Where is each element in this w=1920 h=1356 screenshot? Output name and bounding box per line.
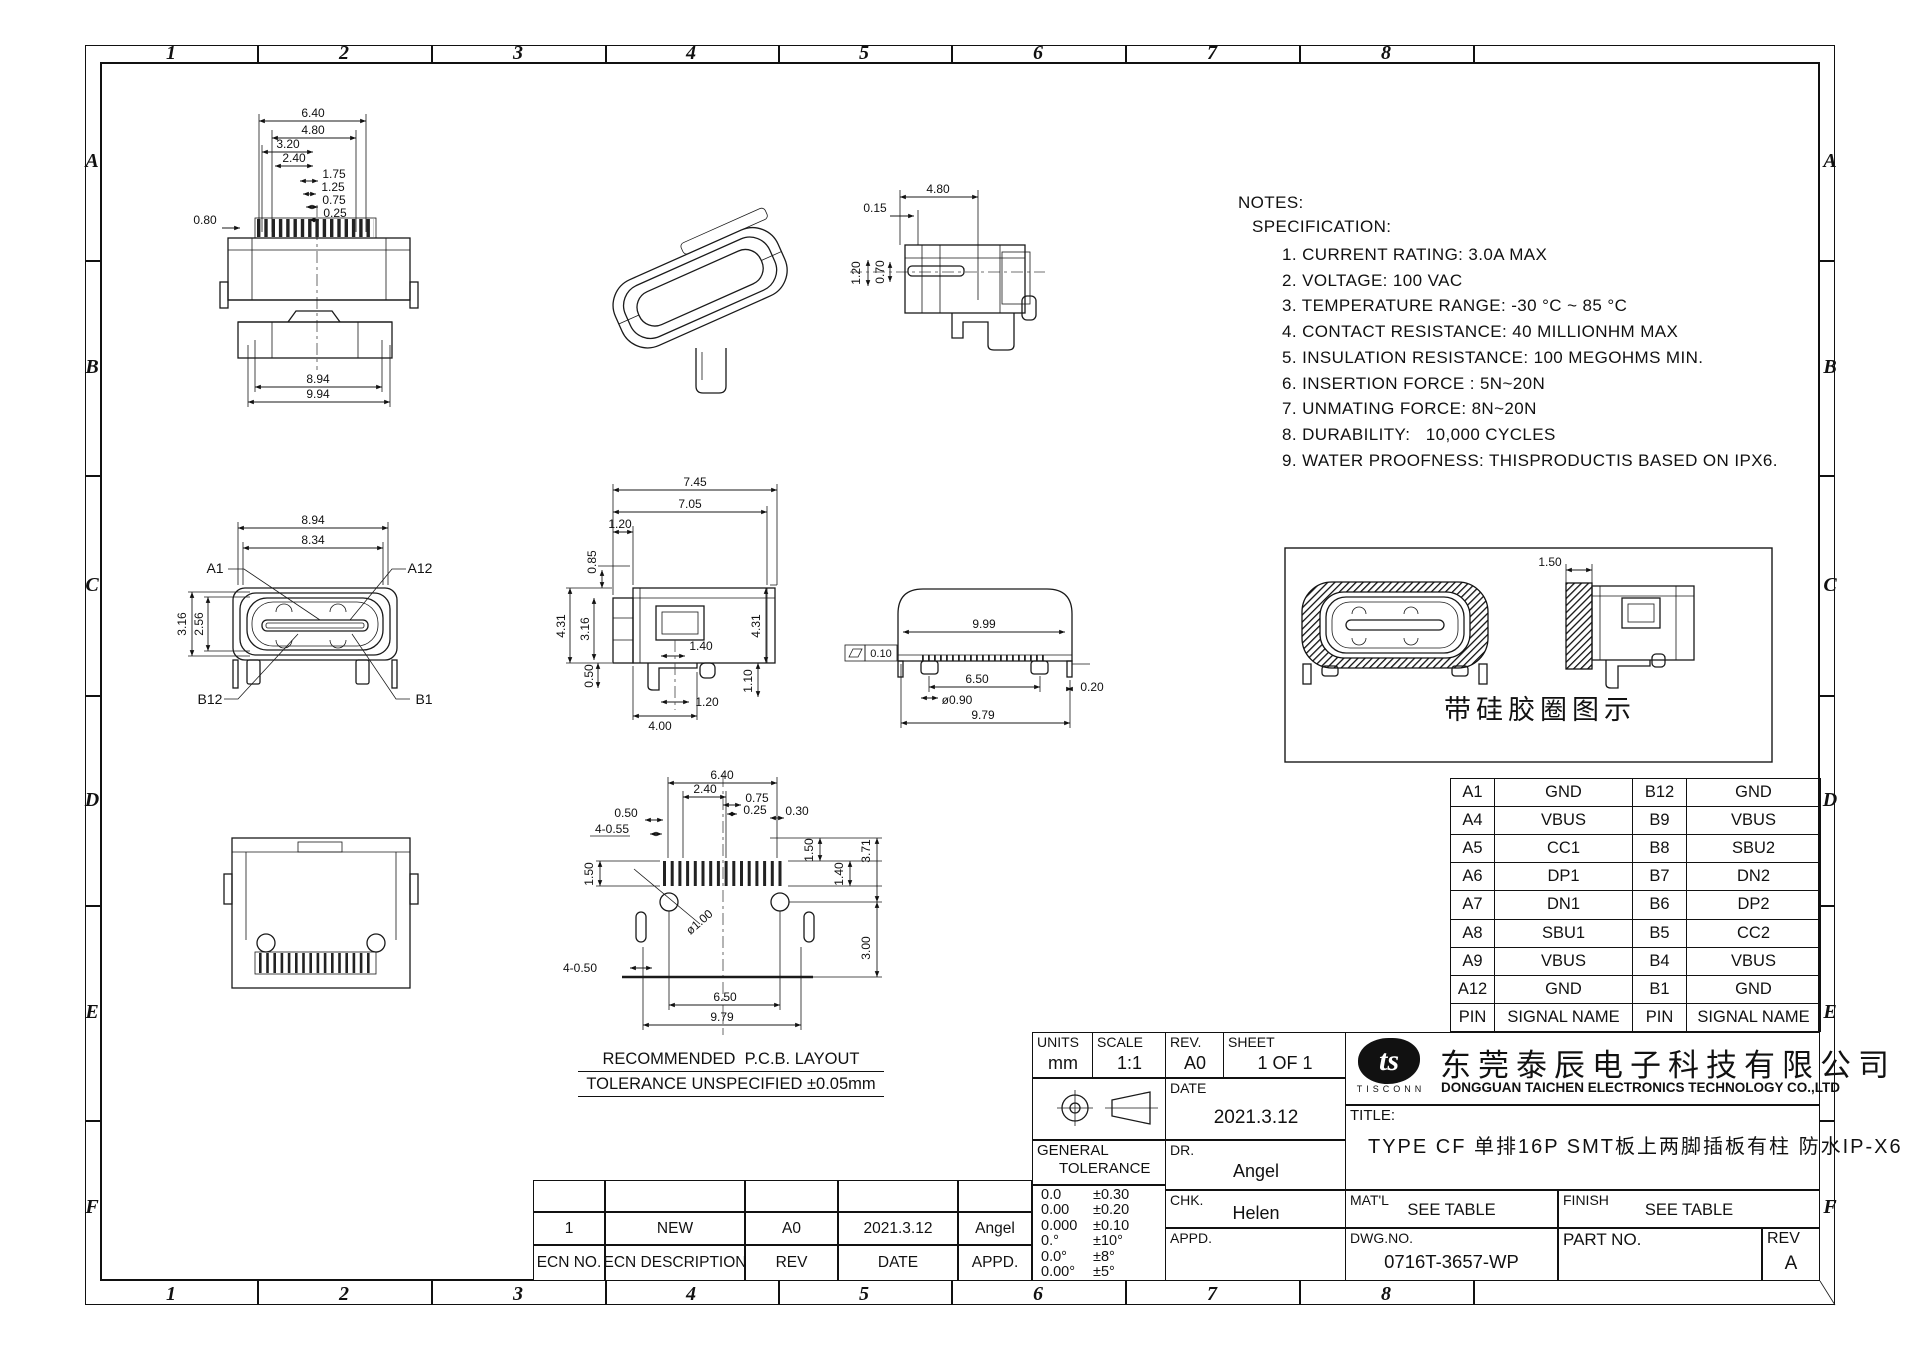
ecn-empty-cell <box>605 1180 745 1212</box>
note-item: 5. INSULATION RESISTANCE: 100 MEGOHMS MI… <box>1282 345 1708 371</box>
scale-cell: SCALE 1:1 <box>1092 1032 1167 1078</box>
grid-col-bottom: 4 <box>676 1284 706 1304</box>
pin-header-cell: PIN <box>1633 1003 1687 1031</box>
pin-cell: A5 <box>1451 835 1495 863</box>
checked-by-cell: CHK. Helen <box>1165 1190 1347 1228</box>
general-tolerance-line1: GENERAL <box>1037 1142 1109 1159</box>
sheet-label: SHEET <box>1228 1034 1275 1050</box>
tolerance-row: 0.00±0.20 <box>1041 1203 1166 1218</box>
date-label: DATE <box>1170 1080 1206 1096</box>
appd-label: APPD. <box>1170 1230 1212 1246</box>
rev-label: REV. <box>1170 1034 1201 1050</box>
rev-value: A0 <box>1166 1053 1224 1074</box>
grid-col-bottom: 8 <box>1371 1284 1401 1304</box>
grid-row-left: B <box>80 357 104 377</box>
grid-col-top: 5 <box>849 43 879 63</box>
rev2-value: A <box>1763 1253 1819 1275</box>
finish-cell: FINISH SEE TABLE <box>1558 1190 1820 1228</box>
grid-row-left: A <box>80 151 104 171</box>
dwg-no-cell: DWG.NO. 0716T-3657-WP <box>1345 1228 1558 1281</box>
signal-cell: GND <box>1495 975 1633 1003</box>
units-value: mm <box>1033 1053 1093 1074</box>
silicone-caption: 带硅胶圈图示 <box>1390 688 1690 727</box>
units-cell: UNITS mm <box>1032 1032 1094 1078</box>
grid-col-bottom: 6 <box>1023 1284 1053 1304</box>
ecn-empty-cell <box>958 1180 1032 1212</box>
grid-row-right: E <box>1818 1002 1842 1022</box>
notes-block: NOTES: SPECIFICATION: 1. CURRENT RATING:… <box>1238 193 1708 473</box>
signal-cell: DP2 <box>1687 891 1821 919</box>
ecn-appd-value: Angel <box>958 1212 1032 1245</box>
drawing-sheet: 1 2 3 4 5 6 7 8 1 2 3 4 5 6 7 8 A B C D … <box>0 0 1920 1356</box>
grid-row-right: D <box>1818 790 1842 810</box>
finish-value: SEE TABLE <box>1559 1201 1819 1220</box>
signal-cell: GND <box>1687 779 1821 807</box>
grid-row-right: A <box>1818 151 1842 171</box>
grid-col-top: 2 <box>329 43 359 63</box>
company-name-cn: 东莞泰辰电子科技有限公司 <box>1440 1040 1812 1085</box>
material-cell: MAT'L SEE TABLE <box>1345 1190 1558 1228</box>
table-row: A6 DP1 B7 DN2 <box>1451 863 1821 891</box>
note-item: 2. VOLTAGE: 100 VAC <box>1282 268 1708 294</box>
ecn-empty-cell <box>745 1180 838 1212</box>
table-row: A5 CC1 B8 SBU2 <box>1451 835 1821 863</box>
pin-cell: A9 <box>1451 947 1495 975</box>
note-item: 1. CURRENT RATING: 3.0A MAX <box>1282 242 1708 268</box>
sheet-value: 1 OF 1 <box>1224 1053 1346 1074</box>
note-item: 8. DURABILITY: 10,000 CYCLES <box>1282 422 1708 448</box>
chk-value: Helen <box>1166 1203 1346 1224</box>
ecn-no-value: 1 <box>533 1212 605 1245</box>
note-item: 3. TEMPERATURE RANGE: -30 °C ~ 85 °C <box>1282 293 1708 319</box>
signal-cell: CC1 <box>1495 835 1633 863</box>
grid-col-bottom: 2 <box>329 1284 359 1304</box>
pin-cell: B7 <box>1633 863 1687 891</box>
part-no-cell: PART NO. <box>1558 1228 1762 1281</box>
note-item: 7. UNMATING FORCE: 8N~20N <box>1282 396 1708 422</box>
ecn-appd-header: APPD. <box>958 1245 1032 1281</box>
table-header-row: PIN SIGNAL NAME PIN SIGNAL NAME <box>1451 1003 1821 1031</box>
table-row: A8 SBU1 B5 CC2 <box>1451 919 1821 947</box>
signal-cell: SBU1 <box>1495 919 1633 947</box>
pin-cell: B4 <box>1633 947 1687 975</box>
date-cell: DATE 2021.3.12 <box>1165 1078 1347 1140</box>
signal-cell: CC2 <box>1687 919 1821 947</box>
ecn-empty-cell <box>533 1180 605 1212</box>
grid-col-top: 4 <box>676 43 706 63</box>
ecn-rev-value: A0 <box>745 1212 838 1245</box>
units-label: UNITS <box>1037 1034 1079 1050</box>
grid-col-top: 7 <box>1197 43 1227 63</box>
tolerance-values-cell: 0.0±0.30 0.00±0.20 0.000±0.10 0.°±10° 0.… <box>1032 1185 1167 1281</box>
dr-value: Angel <box>1166 1161 1346 1182</box>
dwgno-value: 0716T-3657-WP <box>1346 1251 1557 1273</box>
notes-subtitle: SPECIFICATION: <box>1252 217 1708 237</box>
signal-cell: VBUS <box>1687 947 1821 975</box>
pcb-layout-caption: RECOMMENDED P.C.B. LAYOUT TOLERANCE UNSP… <box>578 1050 884 1100</box>
pin-cell: A12 <box>1451 975 1495 1003</box>
ecn-description-header: ECN DESCRIPTION <box>605 1245 745 1281</box>
ecn-rev-header: REV <box>745 1245 838 1281</box>
pin-cell: B9 <box>1633 807 1687 835</box>
ecn-date-value: 2021.3.12 <box>838 1212 958 1245</box>
logo-mark: ts <box>1358 1038 1420 1084</box>
signal-cell: DN2 <box>1687 863 1821 891</box>
pin-cell: B12 <box>1633 779 1687 807</box>
rev2-label: REV <box>1767 1230 1800 1248</box>
pcb-caption-line2: TOLERANCE UNSPECIFIED ±0.05mm <box>578 1075 884 1097</box>
pin-cell: A7 <box>1451 891 1495 919</box>
date-value: 2021.3.12 <box>1166 1107 1346 1129</box>
note-item: 4. CONTACT RESISTANCE: 40 MILLIONHM MAX <box>1282 319 1708 345</box>
signal-cell: GND <box>1495 779 1633 807</box>
signal-header-cell: SIGNAL NAME <box>1687 1003 1821 1031</box>
company-logo: ts TISCONN <box>1352 1038 1430 1090</box>
grid-row-left: C <box>80 575 104 595</box>
approved-by-cell: APPD. <box>1165 1228 1347 1281</box>
pin-cell: A1 <box>1451 779 1495 807</box>
company-name-en: DONGGUAN TAICHEN ELECTRONICS TECHNOLOGY … <box>1441 1080 1840 1095</box>
partno-label: PART NO. <box>1563 1230 1641 1250</box>
pin-cell: A4 <box>1451 807 1495 835</box>
rev-letter-cell: REV A <box>1762 1228 1820 1281</box>
general-tolerance-line2: TOLERANCE <box>1059 1160 1150 1177</box>
ecn-empty-cell <box>838 1180 958 1212</box>
tolerance-row: 0.000±0.10 <box>1041 1219 1166 1234</box>
table-row: A1 GND B12 GND <box>1451 779 1821 807</box>
tolerance-row: 0.0°±8° <box>1041 1250 1166 1265</box>
signal-cell: SBU2 <box>1687 835 1821 863</box>
grid-row-left: F <box>80 1197 104 1217</box>
pin-cell: A6 <box>1451 863 1495 891</box>
grid-row-right: B <box>1818 357 1842 377</box>
grid-col-bottom: 1 <box>156 1284 186 1304</box>
pin-cell: A8 <box>1451 919 1495 947</box>
sheet-cell: SHEET 1 OF 1 <box>1223 1032 1347 1078</box>
drawing-title: TYPE CF 单排16P SMT板上两脚插板有柱 防水IP-X6 <box>1368 1130 1903 1159</box>
ecn-description-value: NEW <box>605 1212 745 1245</box>
pin-cell: B5 <box>1633 919 1687 947</box>
drawn-by-cell: DR. Angel <box>1165 1140 1347 1190</box>
projection-symbol-cell <box>1032 1078 1167 1140</box>
grid-col-top: 3 <box>503 43 533 63</box>
table-row: A9 VBUS B4 VBUS <box>1451 947 1821 975</box>
table-row: A12 GND B1 GND <box>1451 975 1821 1003</box>
tolerance-row: 0.°±10° <box>1041 1234 1166 1249</box>
grid-row-left: E <box>80 1002 104 1022</box>
tolerance-row: 0.0±0.30 <box>1041 1188 1166 1203</box>
table-row: A4 VBUS B9 VBUS <box>1451 807 1821 835</box>
grid-col-bottom: 5 <box>849 1284 879 1304</box>
grid-row-right: C <box>1818 575 1842 595</box>
signal-cell: VBUS <box>1687 807 1821 835</box>
pin-cell: B8 <box>1633 835 1687 863</box>
dwgno-label: DWG.NO. <box>1350 1230 1413 1246</box>
pcb-caption-line1: RECOMMENDED P.C.B. LAYOUT <box>578 1050 884 1072</box>
dr-label: DR. <box>1170 1142 1194 1158</box>
ecn-no-header: ECN NO. <box>533 1245 605 1281</box>
pin-cell: B1 <box>1633 975 1687 1003</box>
ecn-date-header: DATE <box>838 1245 958 1281</box>
grid-row-left: D <box>80 790 104 810</box>
title-label: TITLE: <box>1350 1107 1395 1124</box>
table-row: A7 DN1 B6 DP2 <box>1451 891 1821 919</box>
signal-cell: DN1 <box>1495 891 1633 919</box>
rev-cell: REV. A0 <box>1165 1032 1225 1078</box>
grid-row-right: F <box>1818 1197 1842 1217</box>
signal-header-cell: SIGNAL NAME <box>1495 1003 1633 1031</box>
grid-col-top: 6 <box>1023 43 1053 63</box>
signal-cell: DP1 <box>1495 863 1633 891</box>
grid-col-bottom: 3 <box>503 1284 533 1304</box>
scale-value: 1:1 <box>1093 1053 1166 1074</box>
logo-subtext: TISCONN <box>1352 1084 1430 1094</box>
note-item: 9. WATER PROOFNESS: THISPRODUCTIS BASED … <box>1282 448 1708 474</box>
scale-label: SCALE <box>1097 1034 1143 1050</box>
signal-cell: VBUS <box>1495 807 1633 835</box>
pin-signal-table: A1 GND B12 GND A4 VBUS B9 VBUS A5 CC1 B8… <box>1450 778 1821 1032</box>
notes-title: NOTES: <box>1238 193 1708 213</box>
signal-cell: VBUS <box>1495 947 1633 975</box>
pin-header-cell: PIN <box>1451 1003 1495 1031</box>
general-tolerance-cell: GENERAL TOLERANCE <box>1032 1140 1167 1185</box>
note-item: 6. INSERTION FORCE : 5N~20N <box>1282 371 1708 397</box>
pin-cell: B6 <box>1633 891 1687 919</box>
tolerance-row: 0.00°±5° <box>1041 1265 1166 1280</box>
grid-col-top: 8 <box>1371 43 1401 63</box>
matl-value: SEE TABLE <box>1346 1201 1557 1220</box>
grid-col-bottom: 7 <box>1197 1284 1227 1304</box>
grid-col-top: 1 <box>156 43 186 63</box>
signal-cell: GND <box>1687 975 1821 1003</box>
